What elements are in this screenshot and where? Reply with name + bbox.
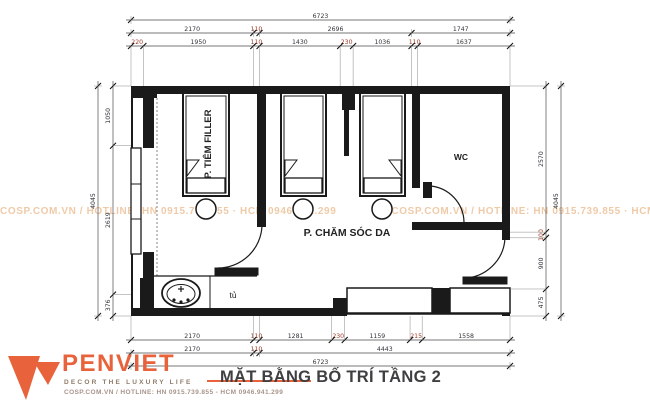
room-label-cham-soc-da: P. CHĂM SÓC DA	[304, 226, 391, 239]
svg-text:900: 900	[538, 257, 545, 269]
brand-name: PENVIET	[62, 350, 175, 378]
room-label-wc: WC	[454, 152, 468, 162]
room-label-cabinet: tủ	[229, 290, 236, 300]
sink-symbol	[162, 279, 200, 307]
svg-text:1558: 1558	[458, 333, 474, 340]
svg-text:6723: 6723	[313, 13, 329, 20]
dimension-annotations: 6723217011026961747220195011014302301036…	[90, 13, 565, 370]
svg-text:2696: 2696	[328, 26, 344, 33]
footer: PENVIET DECOR THE LUXURY LIFE COSP.COM.V…	[0, 350, 650, 413]
svg-text:1430: 1430	[292, 39, 308, 46]
page-title: MẶT BẰNG BỐ TRÍ TẦNG 2	[220, 368, 441, 387]
svg-text:1281: 1281	[288, 333, 304, 340]
svg-text:2570: 2570	[538, 151, 545, 167]
svg-text:4045: 4045	[90, 193, 97, 209]
svg-text:230: 230	[341, 39, 353, 46]
bed-symbol	[183, 93, 405, 196]
svg-text:475: 475	[538, 297, 545, 309]
svg-text:2619: 2619	[105, 212, 112, 228]
window-symbol	[347, 288, 510, 314]
svg-text:376: 376	[105, 299, 112, 311]
svg-text:1950: 1950	[190, 39, 206, 46]
svg-text:215: 215	[410, 333, 422, 340]
svg-text:1036: 1036	[374, 39, 390, 46]
svg-text:1050: 1050	[105, 108, 112, 124]
svg-text:1747: 1747	[453, 26, 469, 33]
svg-text:230: 230	[332, 333, 344, 340]
svg-text:2170: 2170	[184, 333, 200, 340]
penviet-logo-icon	[8, 354, 62, 404]
stool-symbol	[196, 199, 392, 219]
svg-text:2170: 2170	[184, 26, 200, 33]
floor-plan-page: COSP.COM.VN / HOTLINE: HN 0915.739.855 ·…	[0, 0, 650, 413]
brand-hotline: COSP.COM.VN / HOTLINE: HN 0915.739.855 -…	[64, 389, 283, 396]
svg-text:1159: 1159	[370, 333, 386, 340]
svg-text:1637: 1637	[456, 39, 472, 46]
svg-text:220: 220	[131, 39, 143, 46]
brand-tagline: DECOR THE LUXURY LIFE	[64, 379, 193, 386]
svg-text:4045: 4045	[553, 193, 560, 209]
room-label-tiem-filler: P. TIÊM FILLER	[202, 109, 214, 178]
